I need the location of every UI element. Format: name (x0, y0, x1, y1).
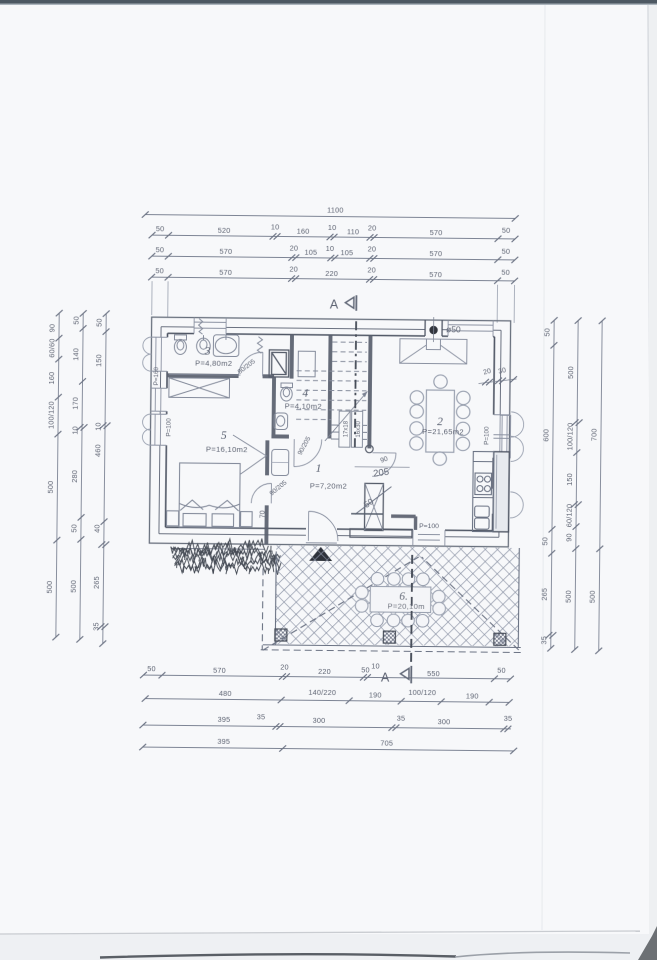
svg-text:10: 10 (328, 223, 337, 232)
svg-text:570: 570 (219, 268, 232, 277)
svg-text:20: 20 (289, 265, 298, 274)
svg-text:280: 280 (70, 470, 79, 483)
svg-text:P=4,10m2: P=4,10m2 (285, 402, 322, 411)
svg-text:1100: 1100 (327, 205, 344, 214)
svg-text:705: 705 (380, 739, 393, 748)
svg-text:220: 220 (325, 269, 338, 278)
svg-text:35: 35 (539, 636, 548, 645)
svg-text:550: 550 (427, 669, 440, 678)
svg-text:70: 70 (260, 510, 267, 518)
svg-text:40: 40 (92, 524, 101, 533)
svg-text:520: 520 (218, 226, 231, 235)
svg-text:P=4,80m2: P=4,80m2 (195, 359, 232, 368)
svg-text:P=100: P=100 (165, 418, 172, 437)
svg-text:570: 570 (429, 270, 442, 279)
svg-text:1: 1 (316, 463, 322, 475)
svg-text:110: 110 (347, 227, 359, 236)
svg-text:570: 570 (430, 228, 443, 237)
svg-text:10: 10 (70, 426, 79, 435)
svg-text:50: 50 (155, 266, 164, 275)
svg-text:150: 150 (565, 473, 574, 486)
svg-text:170: 170 (71, 397, 80, 410)
svg-text:A: A (381, 671, 390, 685)
svg-text:20: 20 (368, 244, 377, 253)
svg-text:P=7,20m2: P=7,20m2 (310, 481, 347, 490)
svg-text:460: 460 (93, 444, 102, 457)
svg-text:480: 480 (219, 689, 232, 698)
svg-text:P=21,65m2: P=21,65m2 (422, 427, 464, 436)
svg-text:20: 20 (367, 265, 376, 274)
svg-text:P=100: P=100 (483, 426, 490, 445)
svg-text:220: 220 (318, 667, 331, 676)
svg-text:105: 105 (340, 248, 353, 257)
svg-text:190: 190 (466, 691, 479, 700)
svg-text:500: 500 (69, 580, 78, 593)
svg-text:50: 50 (497, 666, 506, 675)
svg-text:265: 265 (92, 576, 101, 589)
svg-text:160: 160 (297, 227, 310, 236)
svg-text:90: 90 (48, 324, 57, 333)
svg-text:500: 500 (564, 590, 573, 603)
svg-text:50: 50 (502, 226, 511, 235)
svg-text:205: 205 (373, 467, 390, 480)
svg-text:50: 50 (147, 664, 156, 673)
svg-text:50: 50 (540, 537, 549, 546)
svg-text:60/60: 60/60 (47, 338, 56, 357)
svg-text:265: 265 (540, 588, 549, 601)
svg-text:100/120: 100/120 (565, 423, 574, 451)
svg-text:ø50: ø50 (446, 324, 461, 334)
svg-text:35: 35 (397, 714, 406, 723)
svg-text:P=16,10m2: P=16,10m2 (206, 445, 248, 454)
svg-text:3: 3 (204, 346, 211, 358)
svg-text:395: 395 (218, 715, 231, 724)
svg-text:20: 20 (280, 662, 289, 671)
svg-text:500: 500 (45, 581, 54, 594)
svg-text:10: 10 (93, 422, 102, 431)
svg-text:100/120: 100/120 (47, 401, 56, 429)
svg-text:50: 50 (72, 316, 81, 325)
svg-text:570: 570 (213, 666, 226, 675)
svg-text:20: 20 (290, 244, 299, 253)
svg-text:50: 50 (543, 328, 552, 337)
svg-text:50: 50 (69, 524, 78, 533)
svg-text:150: 150 (94, 354, 103, 367)
svg-text:A: A (330, 297, 339, 311)
svg-text:50: 50 (156, 224, 165, 233)
svg-text:35: 35 (504, 714, 513, 723)
svg-text:50: 50 (502, 247, 511, 256)
svg-text:300: 300 (438, 717, 451, 726)
svg-text:600: 600 (541, 429, 550, 442)
svg-text:100/120: 100/120 (408, 688, 436, 697)
svg-text:10: 10 (271, 222, 280, 231)
svg-text:P=20,10m: P=20,10m (388, 602, 425, 611)
svg-text:17x18: 17x18 (344, 420, 350, 437)
svg-text:160: 160 (47, 372, 56, 385)
svg-text:10: 10 (371, 661, 380, 670)
svg-text:190: 190 (369, 690, 382, 699)
svg-text:P=160: P=160 (153, 366, 160, 385)
svg-text:4: 4 (302, 388, 308, 400)
svg-text:50: 50 (361, 665, 370, 674)
svg-text:500: 500 (566, 366, 575, 379)
svg-text:10: 10 (326, 244, 335, 253)
svg-text:20: 20 (368, 223, 377, 232)
svg-text:35: 35 (91, 622, 100, 631)
svg-text:90: 90 (564, 533, 573, 542)
svg-text:570: 570 (219, 247, 232, 256)
svg-text:140/220: 140/220 (308, 688, 336, 697)
svg-text:35: 35 (257, 712, 266, 721)
svg-text:570: 570 (429, 249, 442, 258)
svg-text:5: 5 (221, 430, 227, 442)
svg-text:300: 300 (313, 716, 326, 725)
svg-text:500: 500 (588, 590, 597, 603)
svg-text:500: 500 (46, 481, 55, 494)
svg-text:700: 700 (589, 428, 598, 441)
svg-text:105: 105 (304, 248, 317, 257)
svg-text:140: 140 (71, 348, 80, 361)
svg-text:50: 50 (95, 318, 104, 327)
svg-text:16x30: 16x30 (356, 420, 362, 437)
svg-text:395: 395 (217, 737, 230, 746)
svg-text:60/120: 60/120 (565, 504, 574, 528)
svg-text:50: 50 (501, 268, 510, 277)
svg-text:50: 50 (156, 245, 165, 254)
svg-text:P=100: P=100 (419, 523, 439, 530)
